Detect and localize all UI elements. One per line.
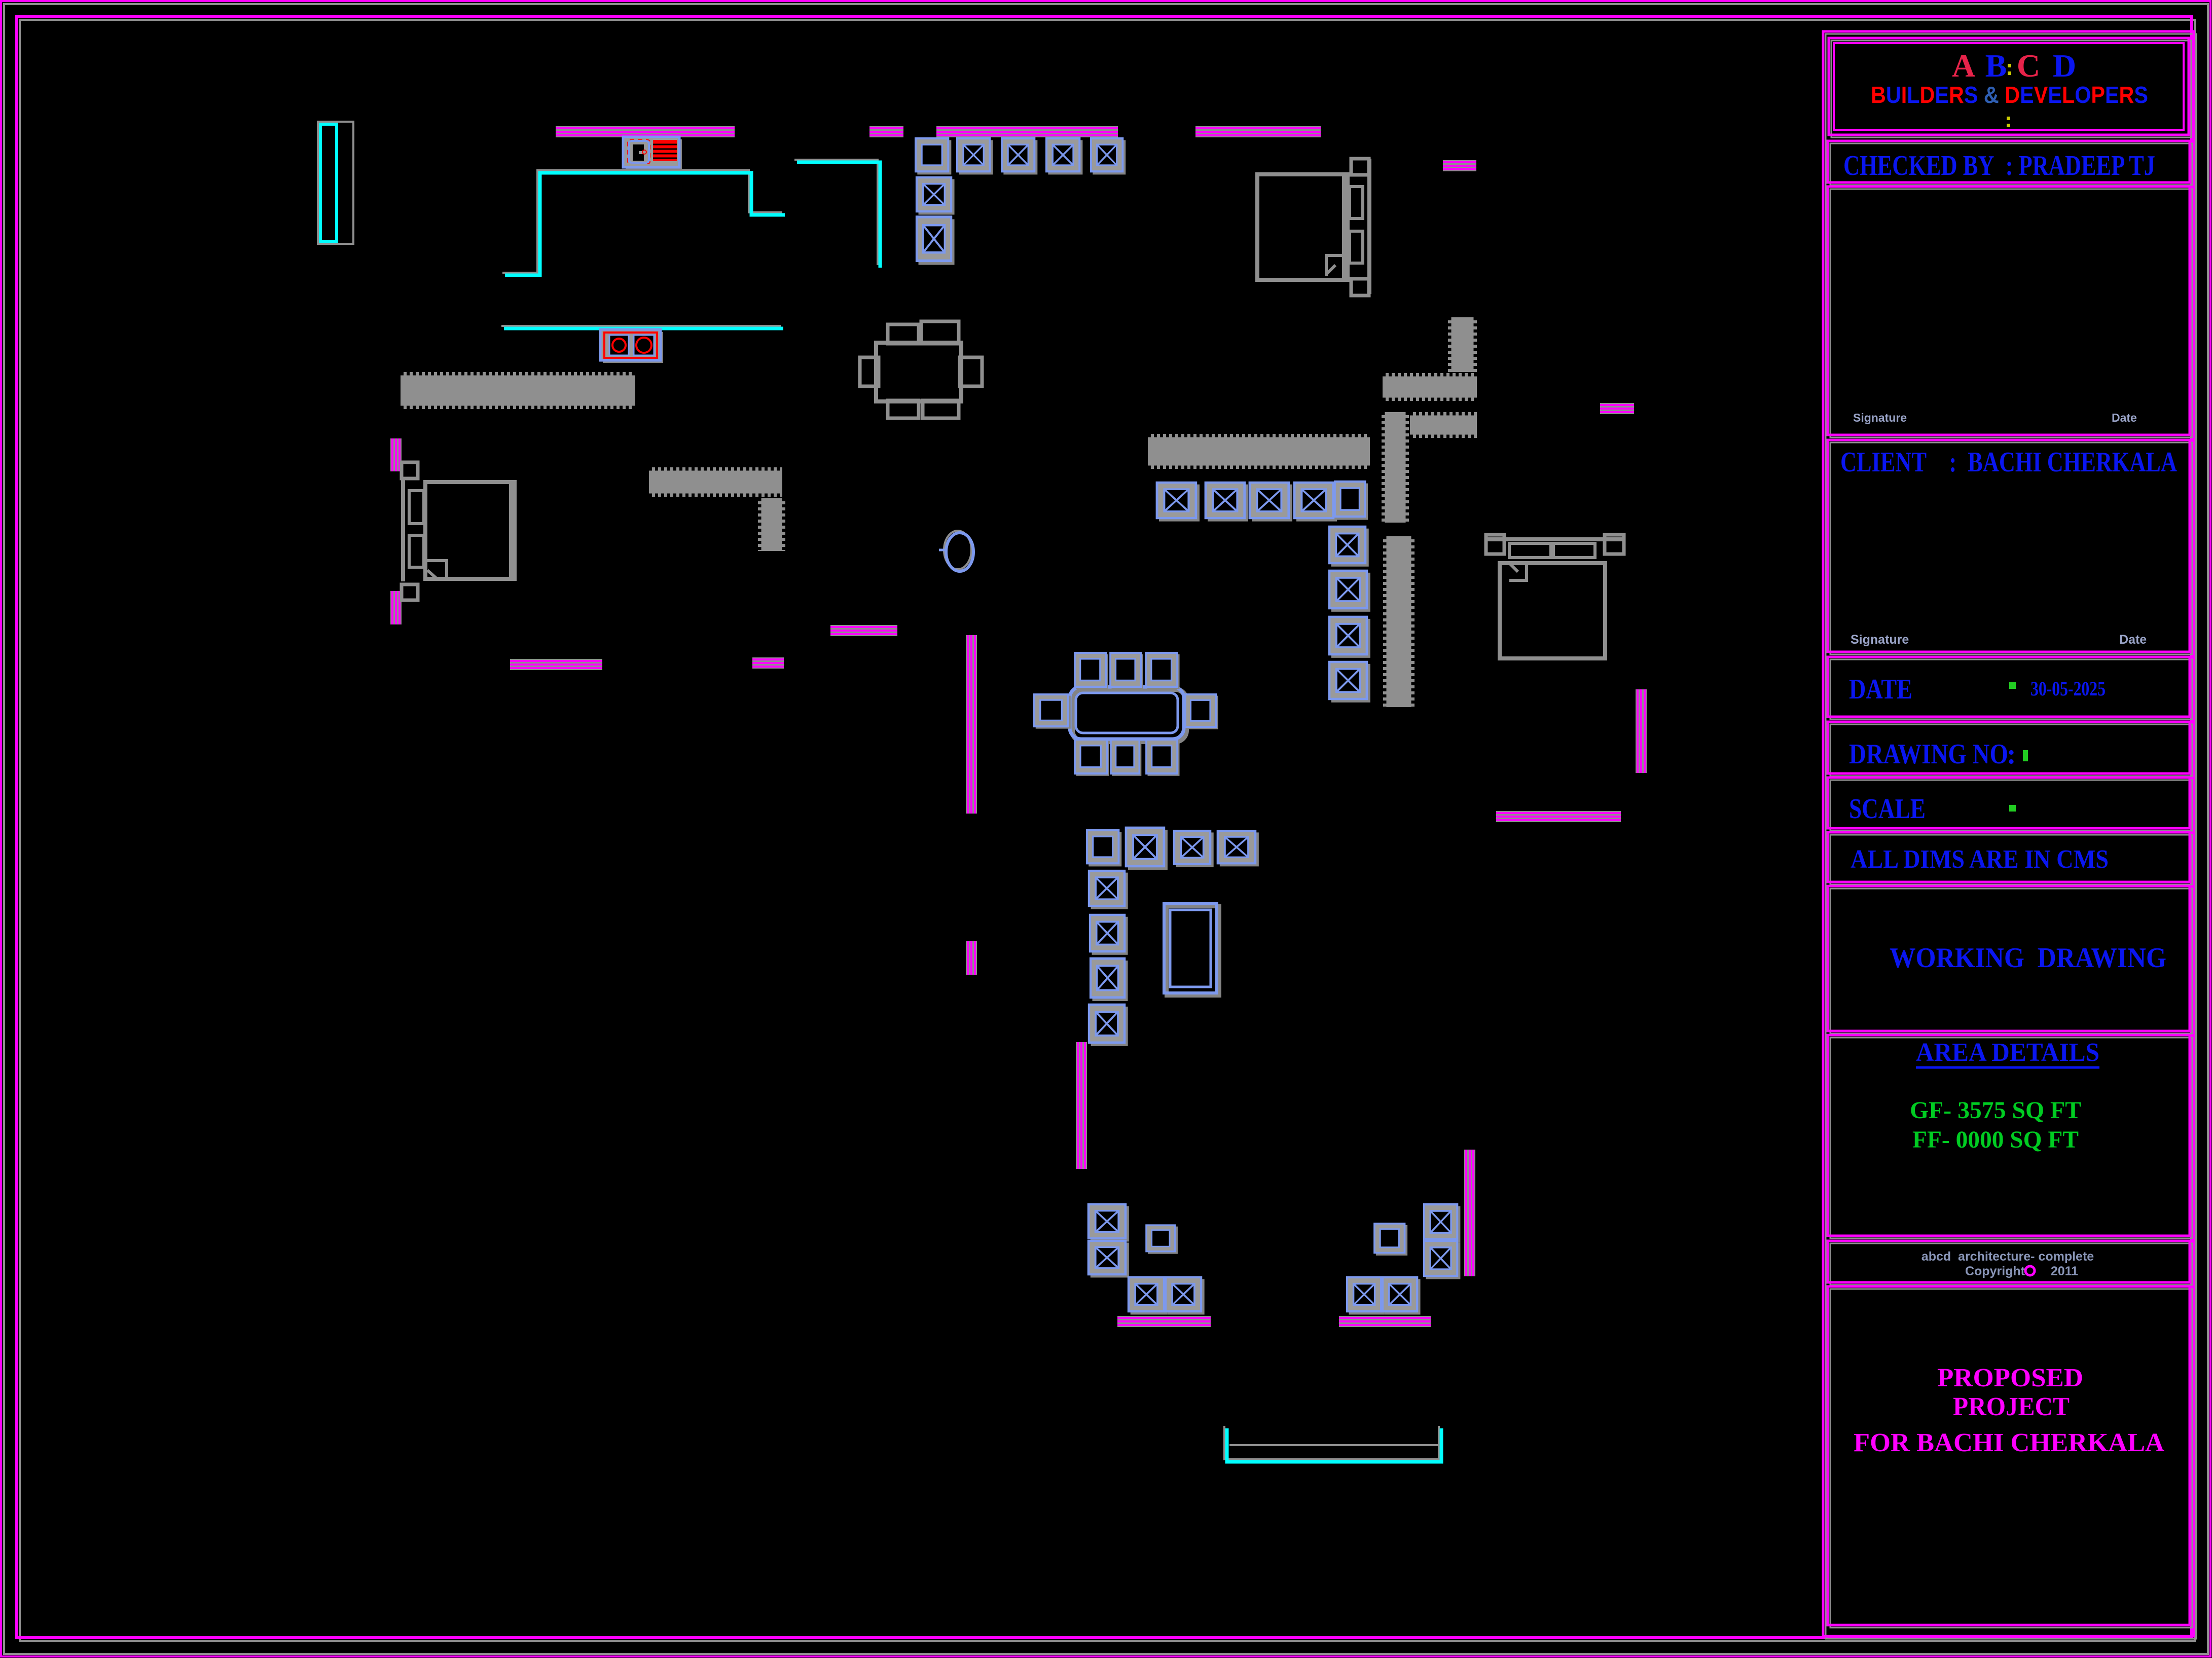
svg-text:FOR BACHI CHERKALA: FOR BACHI CHERKALA [1854, 1428, 2164, 1457]
svg-text:ALL DIMS ARE IN CMS: ALL DIMS ARE IN CMS [1851, 845, 2109, 874]
svg-text:PROJECT: PROJECT [1953, 1392, 2070, 1421]
svg-text:DRAWING NO: DRAWING NO [1849, 739, 2008, 770]
svg-text::: : [2007, 739, 2016, 770]
svg-text:Signature: Signature [1853, 411, 1907, 424]
svg-text:C: C [2017, 48, 2040, 84]
svg-text:CLIENT : BACHI CHERKALA: CLIENT : BACHI CHERKALA [1840, 447, 2177, 478]
svg-text:A: A [1952, 48, 1975, 84]
svg-text:GF- 3575 SQ FT: GF- 3575 SQ FT [1910, 1097, 2081, 1124]
svg-text:AREA DETAILS: AREA DETAILS [1916, 1038, 2099, 1067]
svg-text:DATE: DATE [1849, 674, 1912, 705]
svg-text:2011: 2011 [2051, 1264, 2078, 1278]
svg-text:Signature: Signature [1851, 633, 1909, 647]
svg-text:SCALE: SCALE [1849, 793, 1926, 825]
svg-text:FF- 0000 SQ FT: FF- 0000 SQ FT [1912, 1126, 2079, 1153]
svg-text:PROPOSED: PROPOSED [1937, 1364, 2083, 1392]
svg-text:D: D [2053, 48, 2076, 84]
svg-text:Copyright: Copyright [1965, 1264, 2025, 1278]
svg-text:30-05-2025: 30-05-2025 [2030, 677, 2106, 700]
svg-text:abcd architecture- complete: abcd architecture- complete [1921, 1249, 2094, 1264]
svg-text:WORKING DRAWING: WORKING DRAWING [1890, 942, 2166, 974]
svg-text:Date: Date [2119, 633, 2147, 647]
svg-text:BUILDERS & DEVELOPERS: BUILDERS & DEVELOPERS [1871, 82, 2148, 108]
svg-text:CHECKED BY : PRADEEP TJ: CHECKED BY : PRADEEP TJ [1843, 150, 2155, 181]
svg-text:B: B [1985, 48, 2007, 84]
svg-text:Date: Date [2112, 411, 2137, 424]
